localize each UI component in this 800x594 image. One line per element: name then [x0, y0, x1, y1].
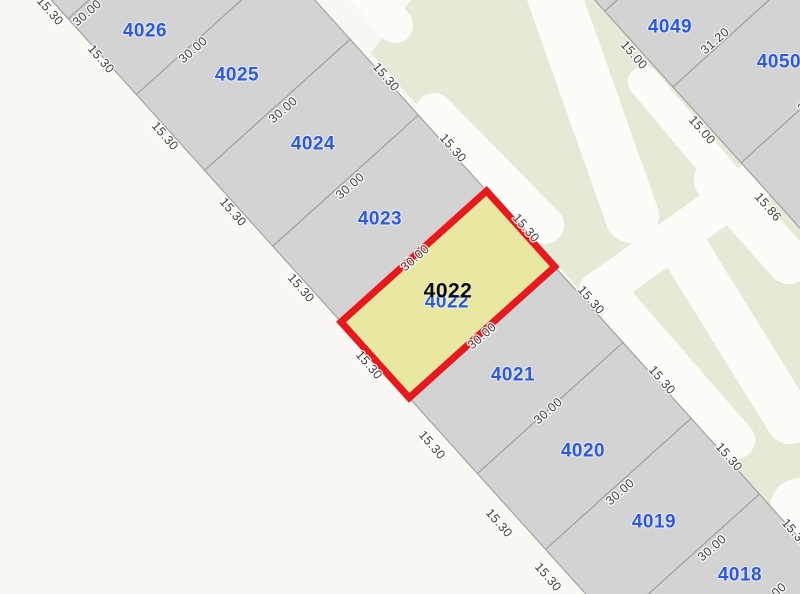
parcel-number-4020: 4020	[561, 441, 605, 462]
parcel-number-4021: 4021	[491, 365, 535, 386]
parcel-number-4050: 4050	[757, 52, 800, 73]
parcel-number-4023: 4023	[358, 209, 402, 230]
selected-parcel-number-4022: 4022	[424, 280, 473, 303]
cadastral-map-view[interactable]: 15.3015.3015.3015.3015.3015.3015.3015.30…	[0, 0, 800, 594]
parcel-number-4019: 4019	[632, 512, 676, 533]
parcel-number-4024: 4024	[291, 134, 335, 155]
parcel-number-4049: 4049	[648, 17, 692, 38]
map-canvas[interactable]: 15.3015.3015.3015.3015.3015.3015.3015.30…	[0, 0, 800, 594]
parcel-number-4025: 4025	[215, 65, 259, 86]
parcel-number-4018: 4018	[718, 565, 762, 586]
parcel-number-4026: 4026	[123, 21, 167, 42]
